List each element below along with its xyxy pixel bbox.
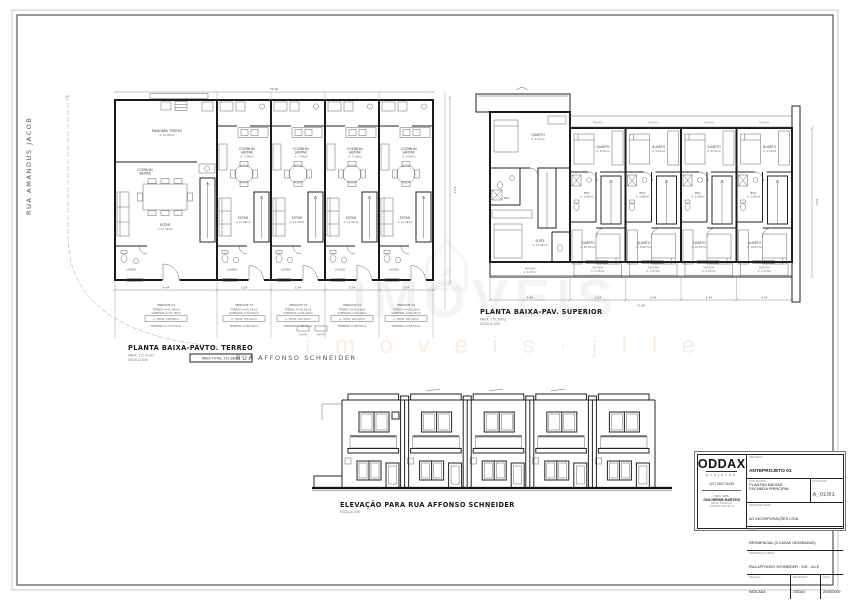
field-escala: ESCALA: INDICADA — [747, 575, 791, 598]
unit-info-05: UNIDADE 05 TÉRREO A=52,16m2 SUPERIOR A=5… — [385, 303, 427, 328]
elevation-scale: ESCALA:1/50 — [340, 510, 360, 514]
svg-text:TÉRREO A=61,04m2: TÉRREO A=61,04m2 — [153, 307, 180, 312]
svg-text:BWC: BWC — [504, 196, 510, 200]
svg-text:3,54: 3,54 — [349, 285, 356, 289]
svg-text:TELHADO: TELHADO — [704, 122, 715, 125]
ground-floor-plan: LIXEIRA PORTÃO 34,00 4,44 3,54 3,54 3,54… — [66, 87, 457, 362]
svg-text:SUPERIOR A=53,26m2: SUPERIOR A=53,26m2 — [229, 311, 259, 315]
unit-info-02: UNIDADE 02 TÉRREO A=52,16m2 SUPERIOR A=5… — [223, 303, 265, 328]
svg-text:SUPERIOR A=53,26m2: SUPERIOR A=53,26m2 — [337, 311, 367, 315]
svg-text:TERRENO A=88,50m2: TERRENO A=88,50m2 — [392, 324, 421, 328]
plan-title-superior: PLANTA BAIXA-PAV. SUPERIOR — [480, 308, 603, 316]
svg-text:TELHADO: TELHADO — [648, 122, 659, 125]
street-label-bottom: RUA AFFONSO SCHNEIDER — [236, 354, 357, 362]
title-block-logo-cell: ODDAX projetos (47) 3027-6439 ARQ. URB. … — [698, 455, 747, 528]
svg-text:UNIDADE 03: UNIDADE 03 — [289, 303, 308, 307]
field-desenho: DESENHO: ODDAX — [791, 575, 821, 598]
unit-info-blocks: UNIDADE 01 TÉRREO A=61,04m2 SUPERIOR A=7… — [145, 303, 427, 328]
field-projeto: PROJETO: ANTEPROJETO 01 — [747, 455, 843, 479]
svg-text:A: 2,47m2: A: 2,47m2 — [523, 270, 537, 274]
svg-text:TÉRREO A=52,16m2: TÉRREO A=52,16m2 — [339, 307, 366, 312]
svg-text:4,44: 4,44 — [527, 295, 534, 299]
plan-area-superior: ÁREA: 175,56m2 — [480, 317, 506, 322]
svg-text:17,69: 17,69 — [637, 304, 646, 308]
svg-text:8,47: 8,47 — [453, 187, 457, 194]
field-endereco: ENDEREÇO OBRA: RUA AFFONSO SCHNEIDER - S… — [747, 551, 843, 575]
svg-text:34,00: 34,00 — [270, 87, 279, 91]
svg-text:SUPERIOR A=53,26m2: SUPERIOR A=53,26m2 — [283, 311, 313, 315]
svg-text:3,54: 3,54 — [650, 295, 657, 299]
street-elevation: ELEVAÇÃO PARA RUA AFFONSO SCHNEIDER ESCA… — [312, 389, 672, 514]
svg-text:SACADA: SACADA — [525, 267, 536, 271]
right-boundary-wall — [792, 106, 800, 302]
svg-text:A. TOTAL 105,42m2: A. TOTAL 105,42m2 — [285, 317, 311, 321]
unit-info-01: UNIDADE 01 TÉRREO A=61,04m2 SUPERIOR A=7… — [145, 303, 187, 328]
svg-text:UNIDADE 04: UNIDADE 04 — [343, 303, 362, 307]
svg-text:A: 9,11m2: A: 9,11m2 — [531, 137, 545, 141]
elevation-title: ELEVAÇÃO PARA RUA AFFONSO SCHNEIDER — [340, 500, 515, 509]
field-obra: OBRA: RESIDENCIAL (5 CASAS GEMINADAS) — [747, 527, 843, 551]
party-walls — [217, 100, 379, 280]
svg-text:3,54: 3,54 — [241, 285, 248, 289]
plan-title-terreo: PLANTA BAIXA-PAVTO. TERREO — [128, 344, 253, 352]
svg-text:TERRENO A=88,50m2: TERRENO A=88,50m2 — [338, 324, 367, 328]
plan-scale-superior: ESCALA:1/50 — [480, 322, 500, 326]
upper-floor-plan: TELHADO TELHADO TELHADO TELHADO QUARTO A… — [476, 88, 819, 327]
svg-text:3,54: 3,54 — [761, 295, 768, 299]
phone-number: (47) 3027-6439 — [709, 482, 734, 486]
parapet-steps — [348, 394, 649, 400]
svg-text:A. TOTAL 138,82m2: A. TOTAL 138,82m2 — [153, 317, 179, 321]
svg-text:TELHADO: TELHADO — [593, 122, 604, 125]
plan-total-box: ÁREA TOTAL 332,86m2 — [202, 356, 240, 361]
svg-text:A. TOTAL 105,42m2: A. TOTAL 105,42m2 — [231, 317, 257, 321]
building-outline — [115, 100, 433, 280]
plan-scale-terreo: ESCALA:1/50 — [128, 358, 148, 362]
oddax-logo: ODDAX — [698, 458, 746, 471]
svg-text:TERRENO A=88,50m2: TERRENO A=88,50m2 — [284, 324, 313, 328]
svg-text:SUPERIOR A=53,26m2: SUPERIOR A=53,26m2 — [391, 311, 421, 315]
title-block: ODDAX projetos (47) 3027-6439 ARQ. URB. … — [694, 451, 846, 531]
oddax-logo-subtitle: projetos — [706, 471, 737, 477]
divider — [702, 490, 741, 491]
svg-text:A. TOTAL 105,42m2: A. TOTAL 105,42m2 — [339, 317, 365, 321]
svg-text:TÉRREO A=52,16m2: TÉRREO A=52,16m2 — [231, 307, 258, 312]
architectural-sheet: ⌂ IMÓVEIS i m ó v e i s · j l l e — [0, 0, 850, 600]
unit-info-04: UNIDADE 04 TÉRREO A=52,16m2 SUPERIOR A=5… — [331, 303, 373, 328]
terrace — [476, 94, 570, 112]
architect-crea: CREA/SC 062.447-9 — [709, 505, 734, 508]
svg-text:TÉRREO A=52,16m2: TÉRREO A=52,16m2 — [285, 307, 312, 312]
svg-text:3,54: 3,54 — [594, 295, 601, 299]
svg-text:4,44: 4,44 — [163, 285, 170, 289]
side-wall — [314, 476, 342, 488]
field-proprietario: PROPRIETÁRIO: AG INCORPORAÇÕES LTDA — [747, 503, 843, 527]
svg-text:TERRENO A=88,50m2: TERRENO A=88,50m2 — [230, 324, 259, 328]
svg-text:UNIDADE 01: UNIDADE 01 — [157, 303, 176, 307]
svg-text:A: 11,45m2: A: 11,45m2 — [532, 243, 547, 247]
field-data: DATA: 26/05/2009 — [821, 575, 843, 598]
svg-text:TELHADO: TELHADO — [759, 122, 770, 125]
svg-text:3,54: 3,54 — [705, 295, 712, 299]
upper-corner-unit: QUARTO A: 9,11m2 BWC SUÍTE A: 11,45m2 — [490, 116, 570, 274]
svg-text:3,54: 3,54 — [403, 285, 410, 289]
svg-text:UNIDADE 05: UNIDADE 05 — [397, 303, 416, 307]
svg-text:QUARTO: QUARTO — [531, 133, 545, 137]
svg-text:SUPERIOR A=77,78m2: SUPERIOR A=77,78m2 — [151, 311, 181, 315]
svg-text:UNIDADE 02: UNIDADE 02 — [235, 303, 254, 307]
gate-label: PORTÃO — [317, 334, 326, 337]
svg-text:TÉRREO A=52,16m2: TÉRREO A=52,16m2 — [393, 307, 420, 312]
svg-text:A. TOTAL 105,42m2: A. TOTAL 105,42m2 — [393, 317, 419, 321]
field-conteudo: CONTEÚDO: PLANTAS BAIXAS FACHADA PRINCIP… — [747, 479, 810, 502]
svg-text:TERRENO A=176,70m2: TERRENO A=176,70m2 — [151, 324, 182, 328]
gate-label: LIXEIRA — [299, 334, 308, 337]
dimension-lines: 34,00 4,44 3,54 3,54 3,54 3,54 8,47 — [114, 87, 458, 292]
unit-info-03: UNIDADE 03 TÉRREO A=52,16m2 SUPERIOR A=5… — [277, 303, 319, 328]
plan-area-terreo: ÁREA: 171,41m2 — [128, 353, 154, 358]
svg-text:SUÍTE: SUÍTE — [535, 238, 544, 243]
field-prancha: PRANCHA: A_01/01 — [810, 479, 843, 502]
svg-text:8,47: 8,47 — [815, 199, 819, 206]
street-label-left: RUA AMANDUS JACOB — [25, 116, 33, 215]
svg-text:3,54: 3,54 — [295, 285, 302, 289]
